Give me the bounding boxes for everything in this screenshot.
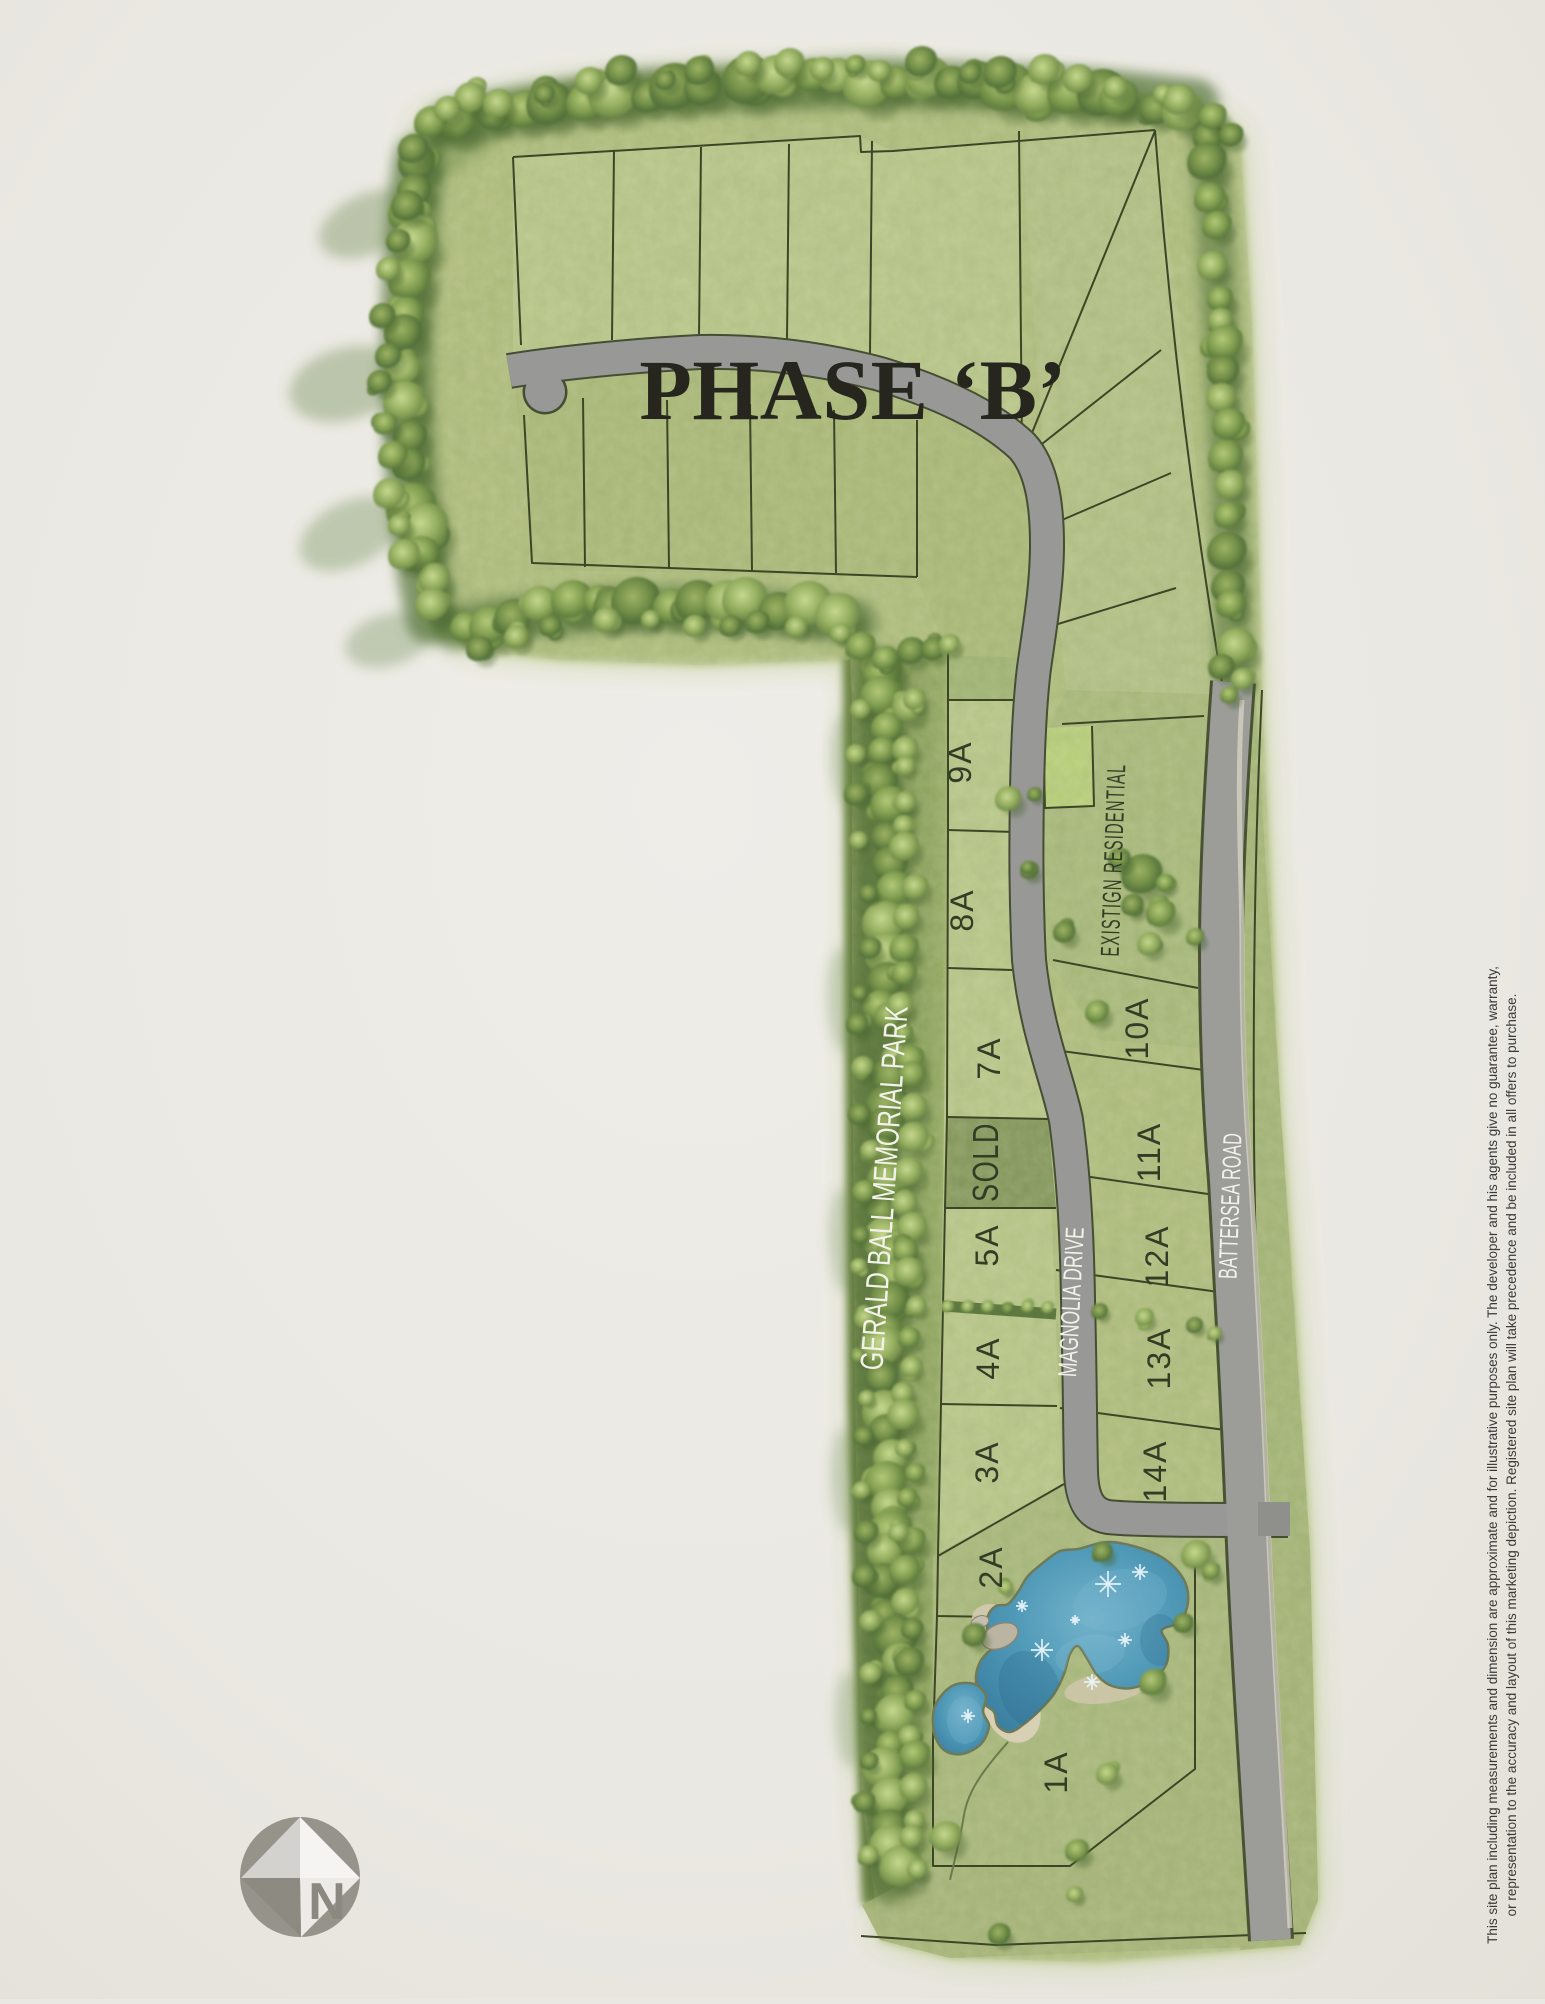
svg-text:8A: 8A [944,888,980,931]
svg-text:11A: 11A [1131,1122,1167,1183]
svg-text:2A: 2A [973,1545,1009,1588]
svg-text:or representation to the accur: or representation to the accuracy and la… [1504,994,1519,1917]
svg-text:7A: 7A [971,1036,1007,1079]
svg-text:4A: 4A [970,1336,1006,1379]
svg-text:3A: 3A [969,1440,1005,1483]
svg-text:12A: 12A [1139,1225,1175,1288]
svg-text:N: N [308,1873,346,1931]
svg-text:9A: 9A [942,740,978,783]
svg-text:1A: 1A [1038,1750,1074,1793]
svg-text:13A: 13A [1141,1327,1177,1390]
svg-text:5A: 5A [969,1223,1005,1266]
svg-text:PHASE ‘B’: PHASE ‘B’ [639,342,1066,438]
svg-text:SOLD: SOLD [965,1122,1006,1202]
svg-text:14A: 14A [1137,1440,1173,1503]
svg-text:This site plan including measu: This site plan including measurements an… [1485,966,1500,1944]
svg-text:BATTERSEA ROAD: BATTERSEA ROAD [1212,1133,1247,1280]
svg-text:10A: 10A [1119,997,1155,1060]
